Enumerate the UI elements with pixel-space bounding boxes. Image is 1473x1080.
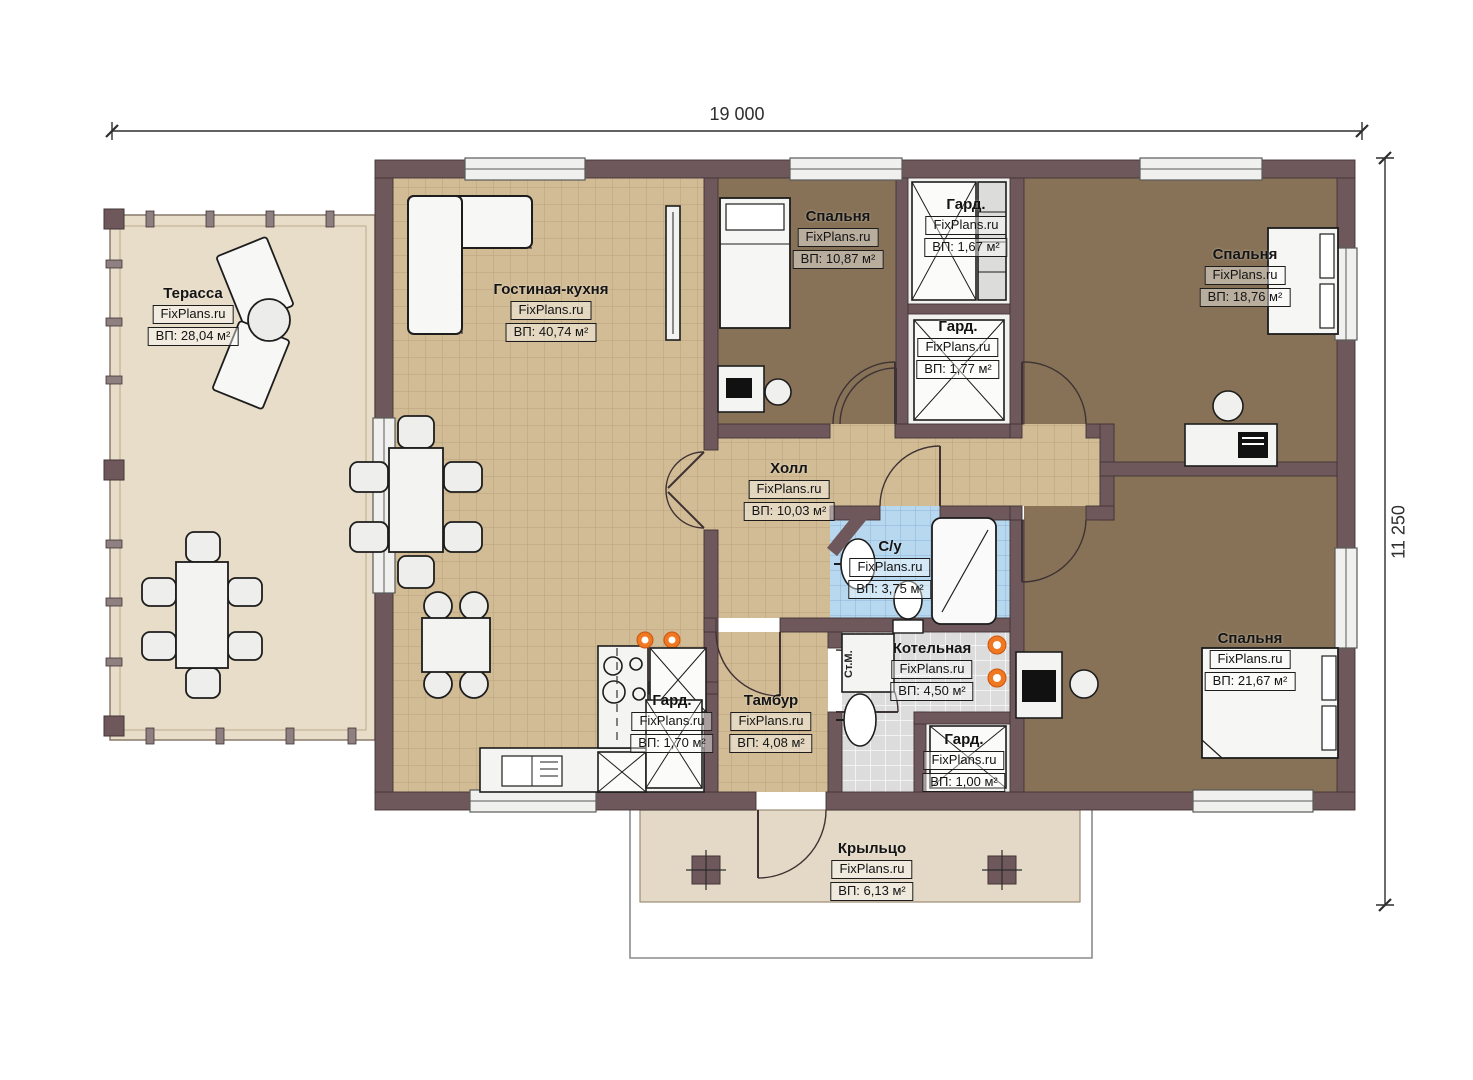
room-name: Спальня [1200,246,1291,263]
room-name: Гостиная-кухня [494,281,609,298]
room-brand: FixPlans.ru [510,301,591,320]
tv-icon [726,378,752,398]
room-brand: FixPlans.ru [631,712,712,731]
room-brand: FixPlans.ru [891,660,972,679]
terrace-area [104,209,375,744]
chair-icon [765,379,791,405]
dimension-height-label: 11 250 [1389,505,1410,559]
tv-icon [1022,670,1056,702]
room-area: ВП: 1,70 м² [630,734,713,753]
room-name: Гард. [916,318,999,335]
pillow-icon [1320,284,1334,328]
room-name: Холл [744,460,835,477]
chair-icon [1213,391,1243,421]
room-brand: FixPlans.ru [917,338,998,357]
room-brand: FixPlans.ru [730,712,811,731]
floor-plan-drawing [0,0,1473,1080]
wall [1010,506,1022,520]
room-label-porch: Крыльцо FixPlans.ru ВП: 6,13 м² [830,840,913,901]
room-area: ВП: 21,67 м² [1205,672,1296,691]
room-area: ВП: 1,77 м² [916,360,999,379]
room-label-wardrobe-4: Гард. FixPlans.ru ВП: 1,00 м² [922,731,1005,792]
room-name: Гард. [924,196,1007,213]
room-name: Терасса [148,285,239,302]
room-brand: FixPlans.ru [748,480,829,499]
wall [1086,506,1114,520]
room-label-bedroom-top: Спальня FixPlans.ru ВП: 10,87 м² [793,208,884,269]
pillow-icon [1322,706,1336,750]
room-brand: FixPlans.ru [923,751,1004,770]
bedroom-top-furniture [718,198,791,412]
room-brand: FixPlans.ru [797,228,878,247]
wall [704,178,718,450]
room-label-hall: Холл FixPlans.ru ВП: 10,03 м² [744,460,835,521]
pillow-icon [1320,234,1334,278]
wall [908,304,1010,314]
room-area: ВП: 40,74 м² [506,323,597,342]
room-name: Гард. [630,692,713,709]
chair-icon [1070,670,1098,698]
cabinet-icon [598,752,646,792]
wall [895,424,1010,438]
room-name: Тамбур [729,692,812,709]
room-area: ВП: 28,04 м² [148,327,239,346]
room-brand: FixPlans.ru [849,558,930,577]
room-label-wardrobe-1: Гард. FixPlans.ru ВП: 1,67 м² [924,196,1007,257]
room-brand: FixPlans.ru [152,305,233,324]
room-label-tambour: Тамбур FixPlans.ru ВП: 4,08 м² [729,692,812,753]
room-brand: FixPlans.ru [1209,650,1290,669]
wall [828,632,842,648]
room-label-wardrobe-3: Гард. FixPlans.ru ВП: 1,70 м² [630,692,713,753]
wall [1010,424,1022,438]
pillow-icon [726,204,784,230]
room-brand: FixPlans.ru [925,216,1006,235]
room-label-bathroom: С/у FixPlans.ru ВП: 3,75 м² [848,538,931,599]
wall [896,178,908,424]
room-area: ВП: 3,75 м² [848,580,931,599]
room-brand: FixPlans.ru [831,860,912,879]
room-area: ВП: 6,13 м² [830,882,913,901]
room-name: Спальня [1205,630,1296,647]
room-area: ВП: 10,03 м² [744,502,835,521]
room-label-wardrobe-2: Гард. FixPlans.ru ВП: 1,77 м² [916,318,999,379]
room-label-living-kitchen: Гостиная-кухня FixPlans.ru ВП: 40,74 м² [494,281,609,342]
floor-plan-canvas: 19 000 11 250 Ст.М. Терасса FixPlans.ru … [0,0,1473,1080]
room-area: ВП: 18,76 м² [1200,288,1291,307]
room-area: ВП: 1,00 м² [922,773,1005,792]
room-area: ВП: 4,50 м² [890,682,973,701]
wall [828,712,842,792]
room-area: ВП: 1,67 м² [924,238,1007,257]
room-name: С/у [848,538,931,555]
room-name: Крыльцо [830,840,913,857]
room-name: Котельная [890,640,973,657]
room-label-boiler: Котельная FixPlans.ru ВП: 4,50 м² [890,640,973,701]
room-label-bedroom-right: Спальня FixPlans.ru ВП: 18,76 м² [1200,246,1291,307]
pillow-icon [1322,656,1336,700]
washing-machine-label: Ст.М. [843,638,859,690]
room-area: ВП: 4,08 м² [729,734,812,753]
room-name: Гард. [922,731,1005,748]
room-area: ВП: 10,87 м² [793,250,884,269]
room-name: Спальня [793,208,884,225]
wall [718,424,830,438]
dimension-width-label: 19 000 [709,104,764,125]
sink-icon [844,694,876,746]
terrace-table-icon [248,299,290,341]
room-label-bedroom-bottom: Спальня FixPlans.ru ВП: 21,67 м² [1205,630,1296,691]
room-label-terrace: Терасса FixPlans.ru ВП: 28,04 м² [148,285,239,346]
wall [704,618,716,632]
wall [914,712,1010,724]
room-brand: FixPlans.ru [1204,266,1285,285]
